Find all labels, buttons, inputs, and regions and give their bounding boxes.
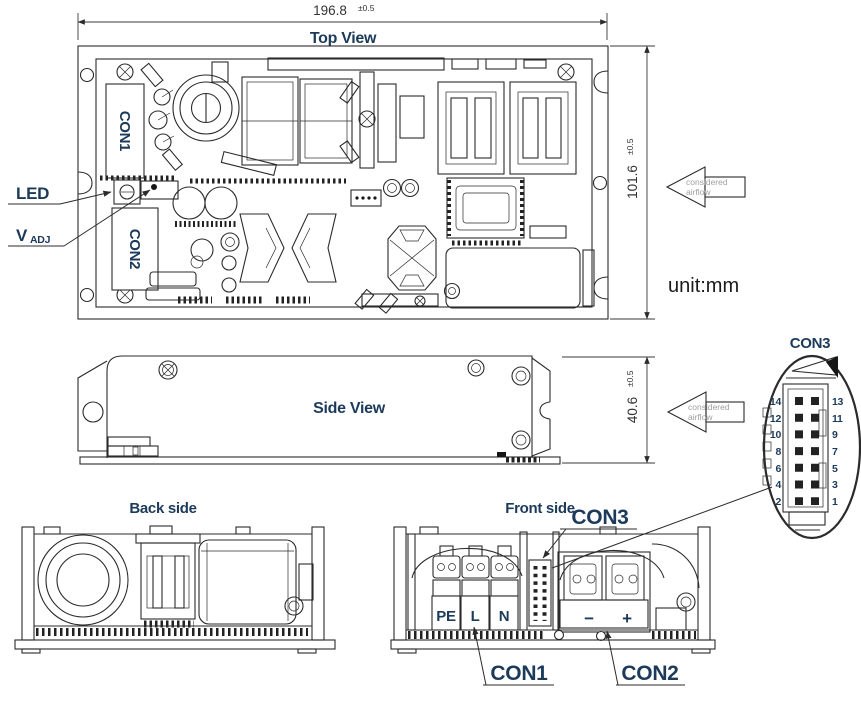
terminal-pe-label: PE bbox=[436, 608, 456, 625]
flange-notch bbox=[78, 172, 92, 194]
height-dim-value: 101.6 bbox=[625, 165, 640, 199]
con2-box-label: CON2 bbox=[126, 229, 143, 269]
side-base-plate bbox=[80, 457, 560, 464]
base-hole bbox=[555, 631, 564, 640]
back-side-title: Back side bbox=[129, 500, 196, 517]
top-view-title: Top View bbox=[310, 30, 377, 47]
mounting-hole bbox=[81, 69, 94, 82]
airflow-text-line2: airflow bbox=[688, 412, 713, 422]
output-choke bbox=[355, 226, 459, 313]
pin-number: 9 bbox=[832, 429, 838, 441]
transformer-2 bbox=[510, 82, 576, 174]
electrolytic-capacitors bbox=[173, 187, 239, 292]
pin-number: 8 bbox=[775, 446, 781, 458]
con1-connector-box: CON1 bbox=[106, 84, 144, 178]
airflow-text-line1: considered bbox=[686, 177, 728, 187]
screw-icon bbox=[415, 296, 425, 306]
screw-hole bbox=[512, 431, 530, 449]
front-left-wall bbox=[394, 527, 406, 640]
input-terminal-block: PE L N bbox=[432, 546, 518, 630]
capacitor-profile bbox=[652, 544, 699, 588]
back-transformer bbox=[136, 534, 200, 624]
flange-notch bbox=[594, 71, 608, 93]
side-height-dim-tolerance: ±0.5 bbox=[625, 370, 635, 387]
airflow-text-line1: considered bbox=[688, 402, 730, 412]
width-dim-value: 196.8 bbox=[313, 3, 347, 18]
con3-pin-numbers-right: 13 11 9 7 5 3 1 bbox=[832, 396, 844, 508]
con3-detail: CON3 14 12 10 8 6 4 2 bbox=[763, 335, 860, 538]
side-view-title: Side View bbox=[313, 400, 386, 417]
width-dim-tolerance: ±0.5 bbox=[358, 3, 375, 13]
pin-number: 3 bbox=[832, 479, 838, 491]
pin-number: 14 bbox=[770, 396, 782, 408]
pin-number: 12 bbox=[770, 413, 782, 425]
back-bulk-capacitor bbox=[199, 540, 296, 624]
front-right-wall bbox=[698, 527, 710, 640]
front-side-title: Front side bbox=[505, 500, 575, 517]
terminal-l-label: L bbox=[471, 608, 480, 625]
height-dim-tolerance: ±0.5 bbox=[625, 138, 635, 155]
mounting-hole bbox=[81, 289, 94, 302]
back-left-wall bbox=[22, 527, 34, 640]
side-height-dimension: 40.6 ±0.5 bbox=[562, 357, 655, 463]
pin-number: 5 bbox=[832, 463, 838, 475]
con2-connector-box: CON2 bbox=[112, 208, 158, 290]
con2-callout: CON2 bbox=[607, 631, 685, 685]
front-con1-label: CON1 bbox=[490, 662, 548, 685]
base-hole bbox=[597, 632, 606, 641]
con3-pins bbox=[799, 397, 815, 505]
primary-heatsink bbox=[340, 72, 375, 168]
film-capacitor-blocks bbox=[242, 77, 352, 165]
mounting-hole bbox=[83, 402, 103, 422]
screw-icon bbox=[159, 361, 177, 379]
bottom-pin-strips bbox=[146, 272, 438, 306]
output-plus-label: + bbox=[622, 609, 632, 628]
center-components bbox=[378, 84, 424, 197]
mounting-hole bbox=[594, 177, 607, 190]
back-toroid-inductor bbox=[38, 535, 128, 625]
height-dimension: 101.6 ±0.5 bbox=[610, 46, 655, 319]
airflow-arrow-side: considered airflow bbox=[668, 392, 744, 432]
screw-icon bbox=[117, 64, 133, 80]
flange-notch bbox=[540, 402, 550, 419]
top-view: Top View bbox=[78, 30, 608, 319]
con1-box-label: CON1 bbox=[116, 111, 133, 151]
front-base-plate bbox=[391, 640, 715, 649]
input-capacitors bbox=[141, 63, 182, 170]
led-label: LED bbox=[16, 184, 49, 203]
airflow-arrow-top: considered airflow bbox=[667, 167, 745, 207]
unit-label: unit:mm bbox=[668, 275, 739, 297]
pin-number: 2 bbox=[775, 496, 781, 508]
pcb-screws bbox=[117, 64, 574, 306]
flange-notch bbox=[594, 277, 608, 299]
output-minus-label: − bbox=[584, 609, 594, 628]
output-terminal-block: − + bbox=[558, 552, 650, 632]
con3-detail-title: CON3 bbox=[790, 335, 830, 352]
back-side-view: Back side bbox=[15, 500, 335, 653]
con3-shroud bbox=[783, 384, 828, 512]
led-indicator bbox=[114, 180, 140, 204]
pin-number: 13 bbox=[832, 396, 844, 408]
pin-number: 6 bbox=[775, 463, 781, 475]
airflow-text-line2: airflow bbox=[686, 187, 711, 197]
psu-mechanical-drawing-page: 196.8 ±0.5 Top View bbox=[0, 0, 861, 708]
secondary-heatsink bbox=[447, 178, 524, 238]
back-base-plate bbox=[15, 640, 335, 649]
vadj-label-sub: ADJ bbox=[30, 234, 51, 246]
terminal-n-label: N bbox=[499, 608, 510, 625]
pin-number: 11 bbox=[832, 413, 843, 425]
pin-number: 1 bbox=[832, 496, 838, 508]
transformer-1 bbox=[438, 82, 504, 174]
screw-hole bbox=[512, 367, 530, 385]
mosfet-pair bbox=[240, 214, 336, 282]
screw-hole bbox=[468, 360, 484, 376]
voltage-trimmer bbox=[141, 181, 178, 199]
front-con2-label: CON2 bbox=[621, 662, 678, 685]
pin-number: 10 bbox=[770, 429, 782, 441]
side-view: Side View bbox=[78, 356, 560, 464]
top-edge-components bbox=[212, 58, 546, 82]
front-con3-header bbox=[529, 560, 551, 626]
side-left-flange bbox=[78, 361, 107, 451]
pin-header-strips bbox=[100, 178, 381, 206]
back-right-wall bbox=[312, 527, 324, 640]
front-side-view: Front side PE L bbox=[391, 500, 715, 653]
engineering-drawing: 196.8 ±0.5 Top View bbox=[0, 0, 861, 708]
pin-number: 7 bbox=[832, 446, 838, 458]
vadj-label-main: V bbox=[16, 226, 28, 245]
side-step-box bbox=[108, 437, 150, 446]
side-height-dim-value: 40.6 bbox=[625, 397, 640, 423]
pin-number: 4 bbox=[775, 479, 781, 491]
input-cover-profile bbox=[412, 548, 522, 578]
con3-pin-numbers-left: 14 12 10 8 6 4 2 bbox=[770, 396, 782, 508]
front-con3-label: CON3 bbox=[571, 506, 628, 529]
screw-icon bbox=[558, 64, 574, 80]
